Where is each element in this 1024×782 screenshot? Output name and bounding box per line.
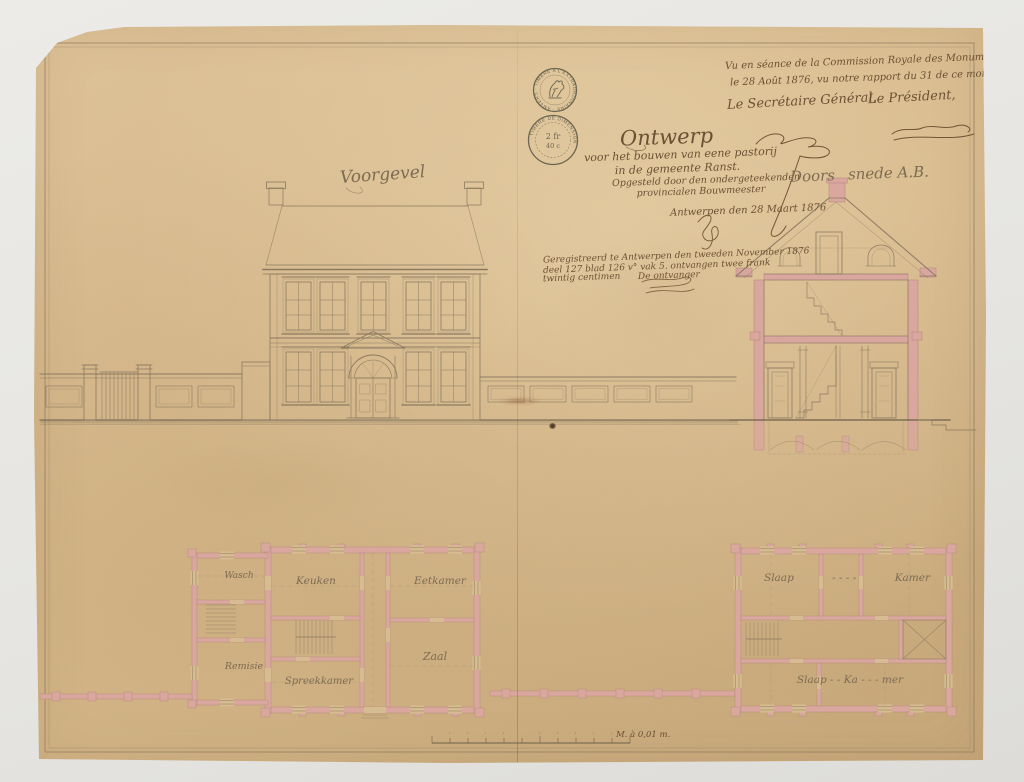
tax-stamp-ring-text: · TIMBRE A L'EXTRAORDINAIRE · ANVERS ·	[30, 16, 577, 112]
dimension-stamp-value-top: 2 fr	[546, 132, 561, 141]
elevation-entrance-door	[341, 332, 405, 419]
drawing-linework: · TIMBRE A L'EXTRAORDINAIRE · ANVERS · ·…	[30, 16, 988, 766]
scale-bar	[432, 732, 630, 743]
elevation-lower-windows	[282, 347, 470, 405]
president-signature	[892, 125, 974, 140]
scale-bar-label: M. à 0,01 m.	[616, 731, 670, 740]
room-label-kamer-top: Kamer	[895, 573, 944, 585]
room-label-slaap-top: Slaap	[754, 573, 794, 585]
water-stain-small	[150, 436, 410, 526]
ground-floor-plan-drawing	[40, 543, 735, 718]
ink-stain-dot	[549, 423, 556, 429]
brown-smudge-stain	[498, 397, 542, 405]
upper-plan-walls	[731, 544, 956, 716]
elevation-left-wall-gate	[40, 362, 270, 420]
upper-room-labels-row2: Slaap - - Ka - - - mer	[754, 675, 946, 687]
elevation-upper-windows	[282, 277, 470, 334]
room-label-dashes-top: - - - -	[832, 573, 856, 585]
lion-emblem-icon	[549, 81, 564, 98]
section-label-part2: snede A.B.	[848, 164, 929, 183]
dimension-stamp: · TIMBRE DE DIMENSION · 2 fr 40 c	[528, 115, 577, 164]
room-label-zaal: Zaal	[404, 651, 466, 663]
tax-stamp: · TIMBRE A L'EXTRAORDINAIRE · ANVERS ·	[30, 16, 577, 112]
center-fold-crease	[517, 30, 518, 762]
pencil-scribble	[148, 22, 178, 25]
drawing-sheet-paper: · TIMBRE A L'EXTRAORDINAIRE · ANVERS · ·…	[30, 16, 988, 766]
voorgevel-flourish	[346, 187, 362, 193]
room-label-keuken: Keuken	[283, 576, 349, 588]
section-label-part1: Doors	[790, 167, 836, 185]
scanned-sheet-background: { "approval": { "line1": "Vu en séance d…	[0, 0, 1024, 782]
room-label-spreekkamer: Spreekkamer	[276, 676, 362, 687]
dimension-stamp-value-bottom: 40 c	[546, 142, 560, 150]
room-label-remisie: Remisie	[213, 662, 275, 672]
section-drawing	[730, 178, 976, 454]
room-label-wasch: Wasch	[210, 572, 268, 582]
upper-plan-door-gaps	[790, 576, 888, 689]
upper-floor-plan-drawing	[731, 544, 956, 716]
room-label-eetkamer: Eetkamer	[402, 576, 478, 588]
svg-text:· TIMBRE A L'EXTRAORDINAIRE ·: · TIMBRE A L'EXTRAORDINAIRE · ANVERS ·	[30, 16, 577, 112]
upper-room-labels-row1: Slaap - - - - Kamer	[754, 573, 944, 585]
ground-plan-door-gaps	[230, 576, 444, 713]
water-stain-large	[550, 216, 770, 376]
